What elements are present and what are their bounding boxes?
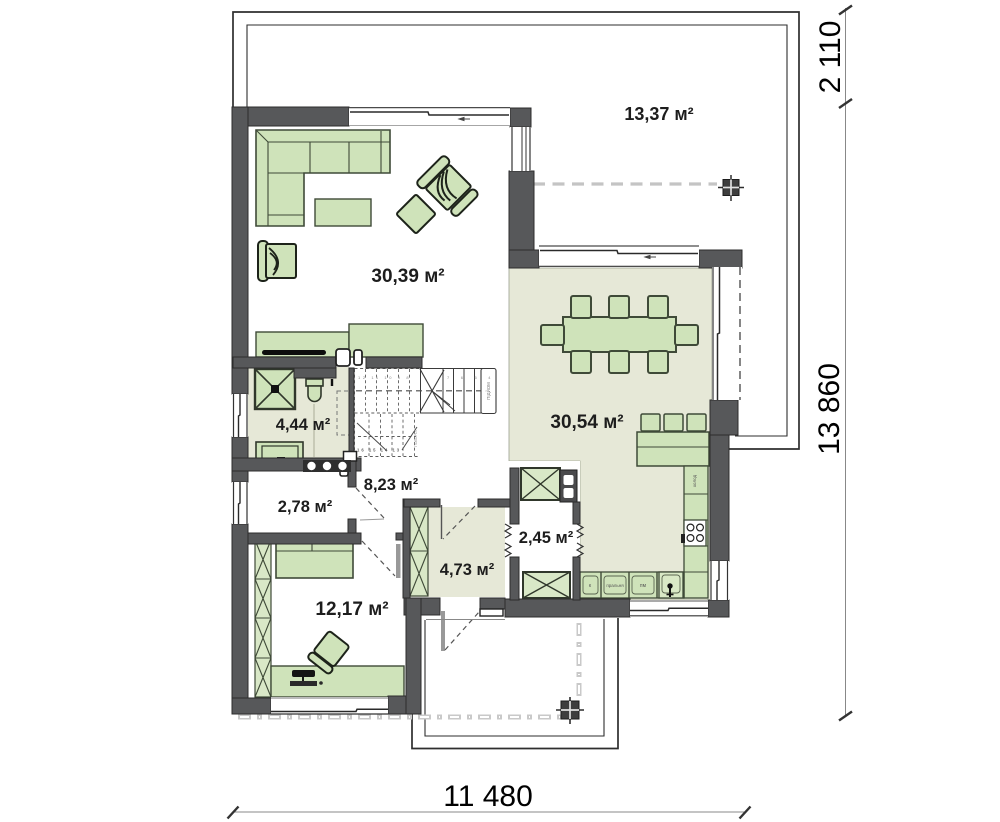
svg-text:30,54 м²: 30,54 м² bbox=[550, 412, 623, 433]
svg-text:2,78 м²: 2,78 м² bbox=[278, 498, 333, 516]
svg-text:4,44 м²: 4,44 м² bbox=[276, 416, 331, 434]
svg-text:ПІДЙОМ: ПІДЙОМ bbox=[486, 382, 491, 400]
svg-text:2 110: 2 110 bbox=[814, 21, 847, 94]
svg-text:2,45 м²: 2,45 м² bbox=[519, 529, 574, 547]
svg-text:13 860: 13 860 bbox=[813, 363, 846, 455]
svg-text:пральня: пральня bbox=[606, 583, 624, 588]
svg-text:пм: пм bbox=[640, 583, 647, 589]
svg-text:8,23 м²: 8,23 м² bbox=[364, 476, 419, 494]
svg-text:7 6 5 4: 7 6 5 4 bbox=[447, 375, 496, 380]
svg-text:4,73 м²: 4,73 м² bbox=[440, 561, 495, 579]
svg-text:11 480: 11 480 bbox=[443, 780, 533, 813]
svg-text:16 15 14 13: 16 15 14 13 bbox=[357, 448, 401, 453]
svg-text:13,37 м²: 13,37 м² bbox=[624, 104, 693, 124]
svg-text:12,17 м²: 12,17 м² bbox=[315, 599, 388, 620]
svg-text:холод: холод bbox=[692, 474, 697, 487]
svg-text:30,39 м²: 30,39 м² bbox=[371, 266, 444, 287]
svg-text:ПОВОРОТ: ПОВОРОТ bbox=[414, 428, 418, 447]
svg-text:12 11 10 9 8: 12 11 10 9 8 bbox=[358, 375, 411, 380]
